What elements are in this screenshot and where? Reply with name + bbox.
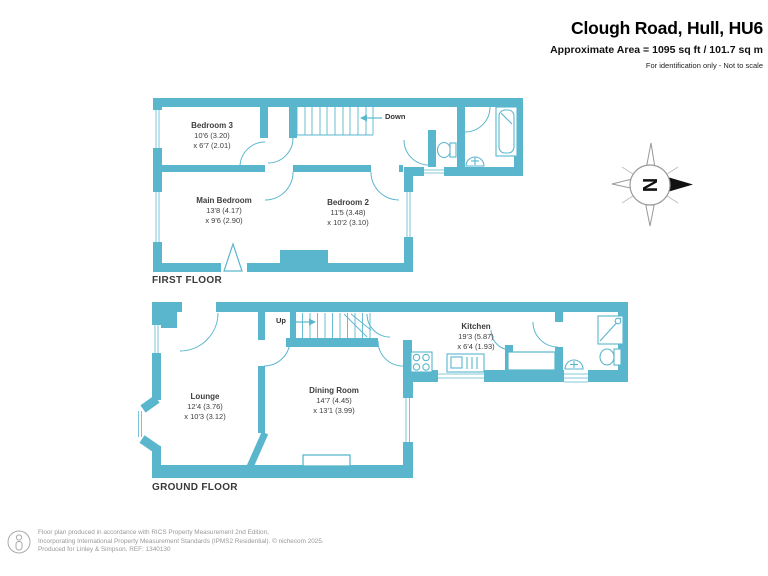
page-title: Clough Road, Hull, HU6: [550, 18, 763, 39]
footer-line-1: Floor plan produced in accordance with R…: [38, 529, 324, 538]
room-label-lounge: Lounge 12'4 (3.76) x 10'3 (3.12): [184, 392, 225, 421]
room-label-kitchen: Kitchen 19'3 (5.87) x 6'4 (1.93): [457, 322, 494, 351]
down-label: Down: [385, 112, 405, 121]
kitchen-unit: [508, 352, 555, 370]
floorplan-page: N Clough Road, Hull, HU6 Approximate Are…: [0, 0, 768, 576]
header: Clough Road, Hull, HU6 Approximate Area …: [550, 18, 763, 70]
first-floor-stairs: [297, 107, 373, 135]
shower-room-sink-icon: [565, 360, 583, 369]
room-dim: x 6'7 (2.01): [191, 141, 233, 151]
room-dim: x 10'2 (3.10): [327, 218, 369, 228]
room-dim: x 6'4 (1.93): [457, 342, 494, 352]
ground-floor-label: GROUND FLOOR: [152, 482, 238, 493]
ground-floor-walls: [140, 302, 628, 478]
footer-text: Floor plan produced in accordance with R…: [38, 529, 324, 555]
shower-icon: [598, 316, 623, 344]
footer: Floor plan produced in accordance with R…: [6, 529, 324, 556]
ground-floor-plan: [137, 302, 629, 478]
footer-line-2: Incorporating International Property Mea…: [38, 538, 324, 547]
room-dim: 10'6 (3.20): [191, 131, 233, 141]
room-dim: x 13'1 (3.99): [309, 406, 359, 416]
room-label-bedroom-3: Bedroom 3 10'6 (3.20) x 6'7 (2.01): [191, 121, 233, 150]
kitchen-hob-icon: [411, 352, 432, 372]
room-name: Bedroom 2: [327, 198, 369, 208]
shower-room-toilet-icon: [600, 349, 621, 365]
room-name: Dining Room: [309, 386, 359, 396]
nichecom-person-icon: [6, 529, 33, 556]
room-label-dining-room: Dining Room 14'7 (4.45) x 13'1 (3.99): [309, 386, 359, 415]
kitchen-sink-icon: [447, 354, 484, 372]
floor-plan-canvas: N: [0, 0, 768, 576]
down-arrow-icon: [360, 115, 382, 122]
compass-north-label: N: [638, 178, 660, 192]
room-dim: x 9'6 (2.90): [196, 216, 252, 226]
room-dim: 11'5 (3.48): [327, 208, 369, 218]
room-dim: 14'7 (4.45): [309, 396, 359, 406]
bathroom-sink-icon: [466, 157, 484, 166]
compass-rose: N: [612, 143, 693, 226]
room-dim: x 10'3 (3.12): [184, 412, 225, 422]
up-label: Up: [276, 316, 286, 325]
first-floor-label: FIRST FLOOR: [152, 275, 222, 286]
ground-floor-stairs: [295, 313, 371, 338]
wc-toilet-icon: [438, 143, 457, 158]
room-dim: 19'3 (5.87): [457, 332, 494, 342]
approximate-area: Approximate Area = 1095 sq ft / 101.7 sq…: [550, 44, 763, 56]
room-name: Main Bedroom: [196, 196, 252, 206]
room-label-bedroom-2: Bedroom 2 11'5 (3.48) x 10'2 (3.10): [327, 198, 369, 227]
room-name: Kitchen: [457, 322, 494, 332]
room-name: Bedroom 3: [191, 121, 233, 131]
room-dim: 12'4 (3.76): [184, 402, 225, 412]
footer-line-3: Produced for Linley & Simpson. REF: 1340…: [38, 546, 324, 555]
room-name: Lounge: [184, 392, 225, 402]
up-arrow-icon: [294, 319, 316, 326]
disclaimer: For identification only - Not to scale: [550, 61, 763, 70]
room-label-main-bedroom: Main Bedroom 13'8 (4.17) x 9'6 (2.90): [196, 196, 252, 225]
bathtub-icon: [496, 107, 517, 156]
room-dim: 13'8 (4.17): [196, 206, 252, 216]
dining-bay-window: [303, 455, 350, 466]
